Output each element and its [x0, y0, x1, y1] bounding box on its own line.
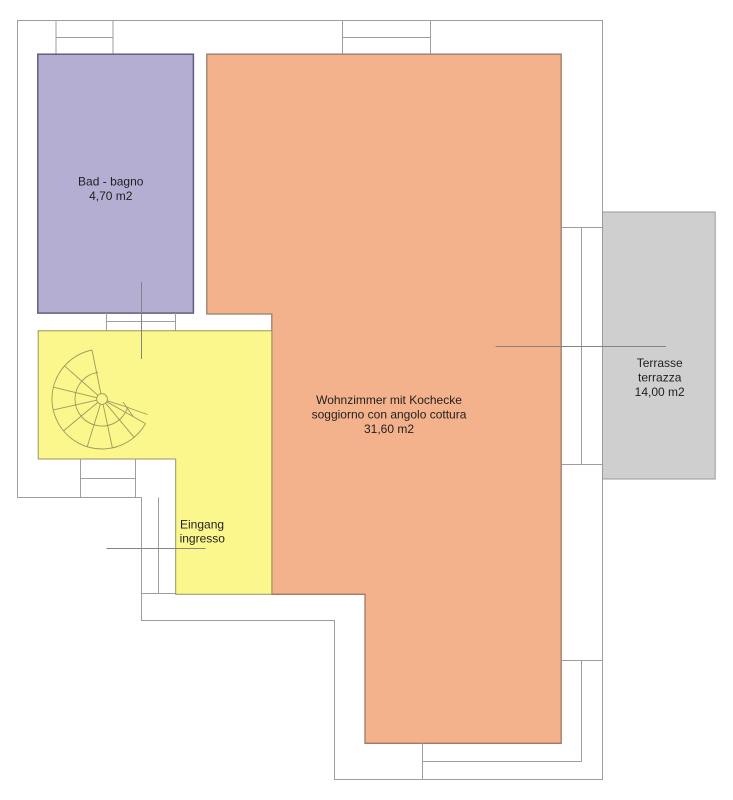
svg-text:Terrasse: Terrasse — [637, 356, 683, 370]
svg-text:terrazza: terrazza — [638, 371, 682, 385]
svg-text:31,60 m2: 31,60 m2 — [364, 422, 414, 436]
svg-text:Bad - bagno: Bad - bagno — [78, 175, 144, 189]
svg-text:14,00 m2: 14,00 m2 — [635, 385, 685, 399]
svg-text:soggiorno con angolo cottura: soggiorno con angolo cottura — [312, 408, 467, 422]
svg-text:Eingang: Eingang — [180, 518, 224, 532]
svg-text:ingresso: ingresso — [180, 532, 226, 546]
svg-text:Wohnzimmer mit Kochecke: Wohnzimmer mit Kochecke — [316, 393, 462, 407]
svg-text:4,70 m2: 4,70 m2 — [89, 189, 133, 203]
